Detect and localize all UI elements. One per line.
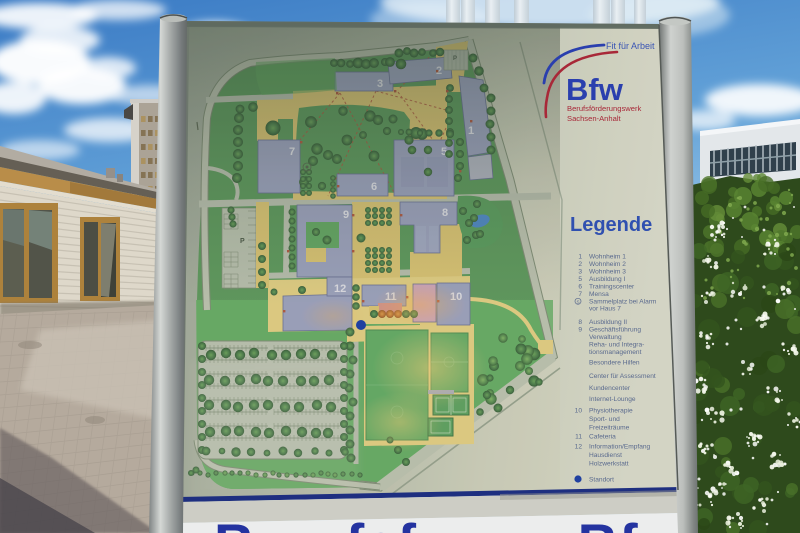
svg-text:Bfw: Bfw (566, 72, 624, 107)
svg-text:Hausdienst: Hausdienst (589, 452, 622, 459)
svg-text:Berufsförderungswerk: Berufsförderungswerk (567, 104, 641, 113)
svg-text:Holzwerkstatt: Holzwerkstatt (589, 461, 629, 468)
svg-text:Wohnheim 1: Wohnheim 1 (589, 254, 626, 261)
svg-text:7: 7 (578, 291, 582, 298)
svg-text:1: 1 (578, 254, 582, 261)
svg-text:Standort: Standort (589, 477, 614, 484)
svg-text:6: 6 (578, 284, 582, 291)
svg-text:Wohnheim 3: Wohnheim 3 (589, 269, 626, 276)
svg-text:Verwaltung: Verwaltung (589, 334, 622, 341)
svg-text:Reha- und Integra-: Reha- und Integra- (589, 342, 644, 349)
svg-text:8: 8 (578, 319, 582, 326)
svg-text:Trainingscenter: Trainingscenter (589, 284, 635, 291)
svg-text:vor Haus 7: vor Haus 7 (589, 306, 621, 313)
svg-text:Information/Empfang: Information/Empfang (589, 444, 651, 451)
svg-text:Center für Assessment: Center für Assessment (589, 373, 656, 380)
svg-text:Fit für Arbeit: Fit für Arbeit (606, 41, 655, 51)
svg-text:Sammelplatz bei Alarm: Sammelplatz bei Alarm (589, 299, 657, 306)
svg-text:Ausbildung II: Ausbildung II (589, 319, 627, 326)
svg-text:Ausbildung I: Ausbildung I (589, 276, 625, 283)
svg-text:Berufsforum Bfw: Berufsforum Bfw (214, 512, 683, 533)
svg-text:Sport- und: Sport- und (589, 416, 620, 423)
svg-text:5: 5 (578, 276, 582, 283)
svg-text:Cafeteria: Cafeteria (589, 434, 616, 441)
svg-text:S: S (576, 300, 579, 305)
svg-text:Internet-Lounge: Internet-Lounge (589, 396, 636, 403)
svg-text:Geschäftsführung: Geschäftsführung (589, 327, 641, 334)
svg-text:3: 3 (578, 269, 582, 276)
svg-text:11: 11 (575, 434, 582, 441)
svg-text:Freizeiträume: Freizeiträume (589, 425, 630, 432)
svg-text:Kundencenter: Kundencenter (589, 385, 631, 392)
svg-text:2: 2 (578, 261, 582, 268)
svg-text:tionsmanagement: tionsmanagement (589, 349, 642, 356)
svg-text:12: 12 (575, 444, 583, 451)
svg-text:Besondere Hilfen: Besondere Hilfen (589, 360, 640, 367)
svg-text:Legende: Legende (570, 214, 652, 236)
svg-text:Physiotherapie: Physiotherapie (589, 408, 633, 415)
svg-text:10: 10 (575, 408, 583, 415)
svg-text:Mensa: Mensa (589, 291, 609, 298)
svg-text:Sachsen-Anhalt: Sachsen-Anhalt (567, 114, 622, 123)
svg-text:Wohnheim 2: Wohnheim 2 (589, 261, 626, 268)
svg-text:9: 9 (578, 327, 582, 334)
